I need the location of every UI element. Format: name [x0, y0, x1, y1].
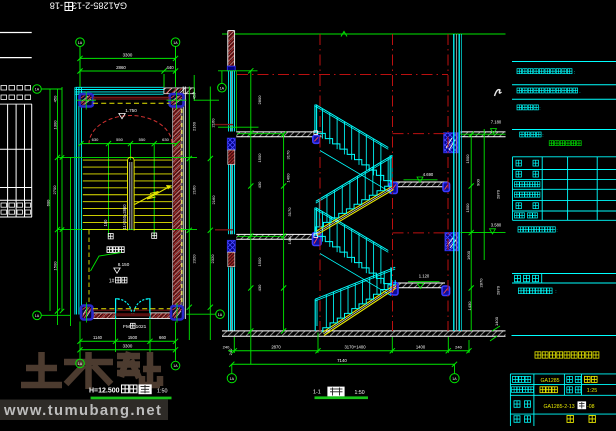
- svg-text:1500: 1500: [465, 154, 470, 164]
- svg-text::: :: [556, 229, 557, 234]
- svg-text::: :: [542, 133, 543, 139]
- svg-text:1#: 1#: [109, 279, 115, 285]
- svg-text:1A: 1A: [218, 313, 223, 317]
- svg-text:7140: 7140: [337, 358, 347, 363]
- svg-text:3170+1400: 3170+1400: [344, 345, 366, 350]
- svg-text:1A: 1A: [35, 314, 40, 318]
- svg-text:GA1285: GA1285: [540, 378, 559, 384]
- svg-text:1.750: 1.750: [125, 108, 137, 113]
- svg-text:www.tumubang.net: www.tumubang.net: [3, 403, 162, 419]
- svg-text:1140: 1140: [93, 335, 103, 340]
- svg-text:240: 240: [223, 345, 230, 350]
- svg-text:1:25: 1:25: [587, 388, 598, 394]
- svg-text:3170: 3170: [287, 207, 292, 217]
- svg-text:GA1285-2-13: GA1285-2-13: [72, 1, 127, 11]
- svg-text:-18: -18: [50, 1, 63, 11]
- svg-text:430: 430: [257, 181, 262, 188]
- svg-text:1-1: 1-1: [313, 390, 321, 396]
- svg-text:2700: 2700: [52, 185, 57, 195]
- svg-text:1400: 1400: [416, 345, 426, 350]
- svg-text:630: 630: [162, 137, 169, 142]
- svg-text:2160: 2160: [211, 118, 216, 128]
- svg-text:660: 660: [159, 335, 167, 340]
- svg-text:2160: 2160: [211, 195, 216, 205]
- svg-text:1430: 1430: [467, 301, 472, 311]
- svg-text:1:50: 1:50: [157, 389, 168, 395]
- svg-text:3.580: 3.580: [491, 223, 502, 228]
- svg-text:1:50: 1:50: [355, 390, 365, 396]
- svg-text:2320: 2320: [192, 254, 197, 264]
- svg-text:550: 550: [116, 137, 123, 142]
- svg-text:1A: 1A: [173, 364, 178, 368]
- svg-text:430: 430: [257, 284, 262, 291]
- svg-text:8.150: 8.150: [118, 262, 130, 267]
- svg-text::: :: [574, 70, 575, 76]
- svg-text:1500: 1500: [128, 335, 138, 340]
- svg-text:1.120: 1.120: [419, 274, 430, 279]
- svg-text:1500: 1500: [53, 261, 58, 271]
- svg-text:1A: 1A: [173, 41, 178, 45]
- svg-text:450: 450: [192, 92, 197, 99]
- svg-text:1A: 1A: [35, 88, 40, 92]
- svg-text::: :: [539, 106, 540, 112]
- svg-text:1400: 1400: [494, 316, 499, 326]
- svg-text:1A: 1A: [230, 377, 235, 381]
- svg-text:2320: 2320: [210, 254, 215, 264]
- svg-text:450: 450: [53, 95, 58, 102]
- svg-text:4.690: 4.690: [423, 172, 434, 177]
- svg-text:1300: 1300: [53, 120, 58, 130]
- svg-text:1500: 1500: [257, 153, 262, 163]
- svg-text:1600: 1600: [466, 250, 471, 260]
- svg-text:2870: 2870: [496, 189, 501, 199]
- svg-text:-08: -08: [587, 404, 595, 410]
- svg-text:1A: 1A: [220, 86, 225, 90]
- svg-text:1500: 1500: [465, 203, 470, 213]
- svg-text:2160: 2160: [192, 185, 197, 195]
- svg-text:1400: 1400: [285, 173, 290, 183]
- svg-text:900: 900: [476, 178, 481, 185]
- svg-text:1A: 1A: [78, 41, 83, 45]
- svg-text:240: 240: [455, 345, 462, 350]
- svg-text:2870: 2870: [479, 278, 484, 288]
- svg-text:1A: 1A: [78, 362, 83, 366]
- svg-text:440: 440: [166, 65, 174, 70]
- svg-text:600: 600: [46, 199, 51, 206]
- svg-text:3300: 3300: [123, 344, 133, 349]
- svg-text:3170: 3170: [285, 150, 290, 160]
- svg-text:630: 630: [92, 137, 99, 142]
- svg-text:.: .: [579, 89, 580, 95]
- svg-text:2860: 2860: [116, 65, 126, 70]
- svg-text:GA1285-2-13: GA1285-2-13: [544, 404, 575, 410]
- svg-text:FM: FM: [123, 324, 130, 330]
- svg-text:1021: 1021: [136, 324, 147, 330]
- svg-text:H=12.500: H=12.500: [89, 387, 120, 394]
- svg-text:7.180: 7.180: [491, 120, 502, 125]
- svg-text:550: 550: [139, 137, 146, 142]
- svg-text:1500: 1500: [257, 257, 262, 267]
- svg-text::: :: [555, 289, 556, 295]
- svg-text:2800: 2800: [257, 95, 262, 105]
- svg-text:2160: 2160: [192, 121, 197, 131]
- svg-text:1A: 1A: [452, 377, 457, 381]
- svg-text:150: 150: [103, 219, 108, 227]
- svg-text:2870: 2870: [271, 345, 281, 350]
- svg-text:2870: 2870: [496, 285, 501, 295]
- svg-text:3300: 3300: [123, 53, 133, 58]
- svg-text:11×260=2860: 11×260=2860: [122, 204, 127, 230]
- svg-text:1400: 1400: [287, 235, 292, 245]
